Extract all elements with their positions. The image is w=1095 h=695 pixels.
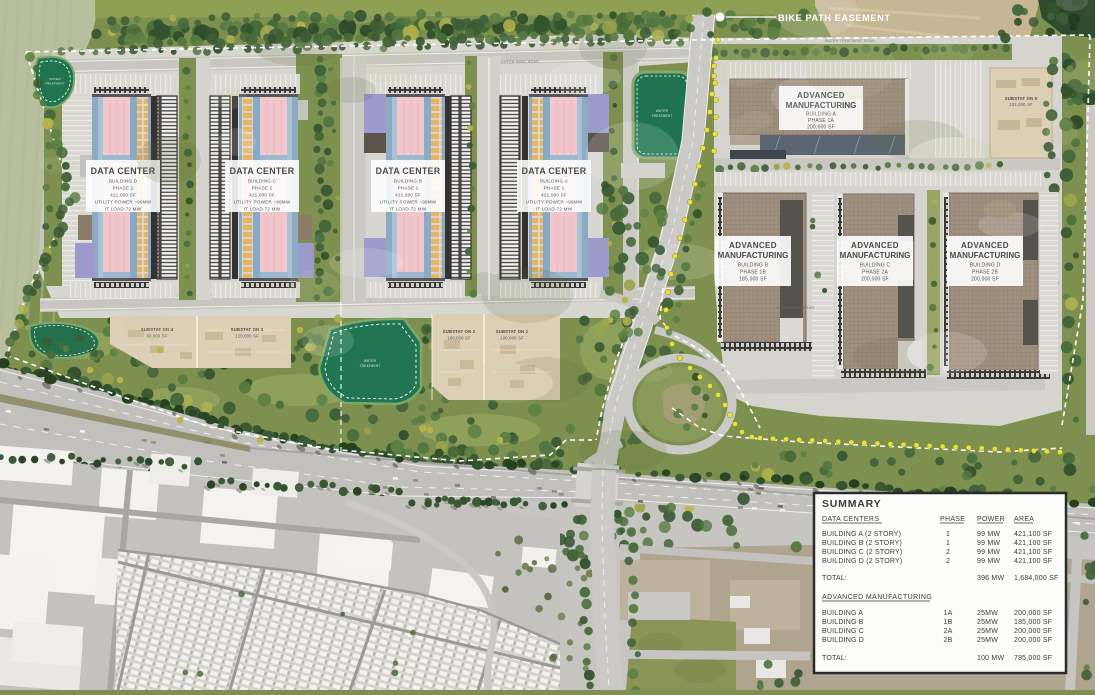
svg-text:DATA CENTER: DATA CENTER — [230, 166, 295, 176]
svg-text:200,000 SF: 200,000 SF — [861, 277, 889, 283]
svg-text:185,000 SF: 185,000 SF — [739, 277, 767, 283]
svg-text:IT LOAD-72 MW: IT LOAD-72 MW — [536, 207, 573, 212]
svg-text:MANUFACTURING: MANUFACTURING — [718, 251, 789, 260]
svg-text:ADVANCED: ADVANCED — [961, 241, 1009, 250]
svg-text:SUBSTAT ON 2: SUBSTAT ON 2 — [443, 329, 476, 334]
svg-text:BUILDING D: BUILDING D — [109, 179, 138, 184]
svg-text:BUILDING B: BUILDING B — [394, 179, 422, 184]
svg-text:185,000 SF: 185,000 SF — [1014, 619, 1052, 626]
svg-text:UTILITY POWER ~99MW: UTILITY POWER ~99MW — [95, 200, 152, 205]
svg-text:120,000 SF: 120,000 SF — [235, 334, 259, 339]
svg-text:TREATMENT: TREATMENT — [651, 114, 672, 118]
svg-text:785,000 SF: 785,000 SF — [1014, 655, 1052, 662]
svg-text:25MW: 25MW — [977, 637, 998, 644]
svg-text:100,000 SF: 100,000 SF — [500, 336, 524, 341]
svg-text:ADVANCED: ADVANCED — [729, 241, 777, 250]
svg-text:PHASE 2A: PHASE 2A — [862, 270, 889, 276]
svg-text:BUILDING B: BUILDING B — [822, 619, 864, 626]
svg-text:PHASE 2: PHASE 2 — [113, 186, 134, 191]
svg-text:SUBSTAT ON 5: SUBSTAT ON 5 — [1005, 96, 1038, 101]
svg-text:BUILDING A: BUILDING A — [822, 610, 863, 617]
svg-text:BIKE PATH EASEMENT: BIKE PATH EASEMENT — [778, 13, 891, 23]
svg-text:421,000 SF: 421,000 SF — [541, 193, 567, 198]
svg-text:421,000 SF: 421,000 SF — [249, 193, 275, 198]
svg-text:DATA CENTER: DATA CENTER — [522, 166, 587, 176]
svg-text:99 MW: 99 MW — [977, 531, 1000, 538]
svg-text:PHASE 2: PHASE 2 — [252, 186, 273, 191]
svg-text:BUILDING B: BUILDING B — [738, 263, 769, 269]
svg-text:OUTER RING ROAD: OUTER RING ROAD — [501, 60, 540, 65]
svg-text:25MW: 25MW — [977, 619, 998, 626]
svg-text:WATER: WATER — [364, 359, 377, 363]
svg-text:MANUFACTURING: MANUFACTURING — [840, 251, 911, 260]
svg-text:WATER: WATER — [656, 109, 669, 113]
svg-text:ADVANCED: ADVANCED — [851, 241, 899, 250]
svg-text:102,000 SF: 102,000 SF — [1009, 102, 1033, 107]
svg-text:PHASE 1: PHASE 1 — [398, 186, 419, 191]
svg-text:UTILITY POWER ~99MW: UTILITY POWER ~99MW — [526, 200, 583, 205]
svg-text:421,100 SF: 421,100 SF — [1014, 558, 1052, 565]
svg-text:POWER: POWER — [977, 516, 1005, 523]
svg-text:BUILDING C: BUILDING C — [822, 628, 864, 635]
svg-text:IT LOAD-72 MW: IT LOAD-72 MW — [105, 207, 142, 212]
svg-text:BUILDING D: BUILDING D — [822, 637, 864, 644]
svg-text:ADVANCED MANUFACTURING: ADVANCED MANUFACTURING — [822, 594, 932, 601]
svg-text:BUILDING D (2 STORY): BUILDING D (2 STORY) — [822, 558, 902, 565]
svg-text:IT LOAD-72 MW: IT LOAD-72 MW — [244, 207, 281, 212]
svg-text:PHASE 2B: PHASE 2B — [972, 270, 999, 276]
svg-text:PHASE: PHASE — [940, 516, 965, 523]
svg-text:200,000 SF: 200,000 SF — [971, 277, 999, 283]
svg-text:BUILDING A: BUILDING A — [540, 179, 569, 184]
svg-text:SUBSTAT ON 1: SUBSTAT ON 1 — [496, 329, 529, 334]
svg-text:TREATMENT: TREATMENT — [359, 364, 380, 368]
svg-text:2A: 2A — [944, 628, 953, 635]
svg-text:AREA: AREA — [1014, 516, 1034, 523]
svg-text:25MW: 25MW — [977, 628, 998, 635]
svg-text:1A: 1A — [944, 610, 953, 617]
svg-text:1,684,000 SF: 1,684,000 SF — [1014, 575, 1058, 582]
svg-text:MANUFACTURING: MANUFACTURING — [950, 251, 1021, 260]
svg-text:TOTAL:: TOTAL: — [822, 655, 847, 662]
svg-text:99 MW: 99 MW — [977, 558, 1000, 565]
svg-text:TREATMENT: TREATMENT — [45, 82, 65, 86]
svg-text:BUILDING B (2 STORY): BUILDING B (2 STORY) — [822, 540, 902, 547]
svg-text:IT LOAD-72 MW: IT LOAD-72 MW — [390, 207, 427, 212]
svg-text:1: 1 — [946, 540, 950, 547]
svg-text:BUILDING C: BUILDING C — [860, 263, 891, 269]
svg-text:SUBSTAT ON 3: SUBSTAT ON 3 — [231, 327, 264, 332]
svg-text:PHASE 1B: PHASE 1B — [740, 270, 767, 276]
svg-text:25MW: 25MW — [977, 610, 998, 617]
svg-text:200,000 SF: 200,000 SF — [1014, 628, 1052, 635]
svg-text:UTILITY POWER ~99MW: UTILITY POWER ~99MW — [380, 200, 437, 205]
svg-text:BUILDING A (2 STORY): BUILDING A (2 STORY) — [822, 531, 901, 538]
svg-text:BUILDING C (2 STORY): BUILDING C (2 STORY) — [822, 549, 902, 556]
svg-text:DATA CENTERS: DATA CENTERS — [822, 516, 879, 523]
svg-text:PHASE 1A: PHASE 1A — [808, 118, 835, 124]
svg-text:2: 2 — [946, 558, 950, 565]
svg-text:2: 2 — [946, 549, 950, 556]
svg-text:100 MW: 100 MW — [977, 655, 1004, 662]
svg-text:SUMMARY: SUMMARY — [822, 498, 881, 510]
svg-text:421,100 SF: 421,100 SF — [1014, 540, 1052, 547]
svg-text:421,100 SF: 421,100 SF — [1014, 549, 1052, 556]
svg-text:421,000 SF: 421,000 SF — [110, 193, 136, 198]
svg-text:OUTER RING ROAD: OUTER RING ROAD — [776, 306, 815, 310]
svg-text:1B: 1B — [944, 619, 953, 626]
svg-text:200,000 SF: 200,000 SF — [1014, 610, 1052, 617]
svg-text:200,000 SF: 200,000 SF — [1014, 637, 1052, 644]
svg-text:200,000 SF: 200,000 SF — [807, 125, 835, 131]
svg-text:99 MW: 99 MW — [977, 549, 1000, 556]
svg-text:421,100 SF: 421,100 SF — [1014, 531, 1052, 538]
svg-text:WATER: WATER — [49, 77, 61, 81]
svg-text:DATA CENTER: DATA CENTER — [376, 166, 441, 176]
svg-text:BUILDING D: BUILDING D — [970, 263, 1001, 269]
svg-text:WATER TREATMENT ROAD: WATER TREATMENT ROAD — [825, 39, 875, 43]
svg-text:1: 1 — [946, 531, 950, 538]
svg-text:UTILITY POWER ~99MW: UTILITY POWER ~99MW — [234, 200, 291, 205]
svg-text:PHASE 1: PHASE 1 — [544, 186, 565, 191]
svg-text:421,000 SF: 421,000 SF — [395, 193, 421, 198]
svg-text:100,000 SF: 100,000 SF — [447, 336, 471, 341]
svg-text:2B: 2B — [944, 637, 953, 644]
svg-text:TOTAL:: TOTAL: — [822, 575, 847, 582]
svg-text:396 MW: 396 MW — [977, 575, 1004, 582]
svg-text:99 MW: 99 MW — [977, 540, 1000, 547]
svg-text:BUILDING C: BUILDING C — [248, 179, 277, 184]
